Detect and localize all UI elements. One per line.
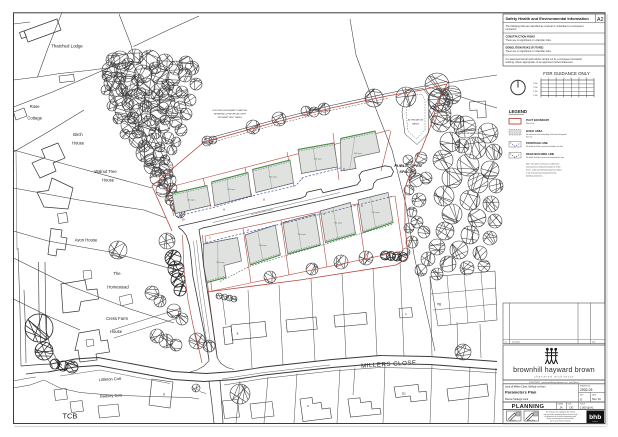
svg-text:SPACE: SPACE: [399, 169, 413, 174]
svg-text:150 sq.m: 150 sq.m: [227, 189, 236, 191]
svg-text:RETAINED & ENFORCED WITH: RETAINED & ENFORCED WITH: [214, 113, 246, 116]
svg-text:TCB: TCB: [63, 412, 78, 421]
svg-text:1:500: 1:500: [533, 83, 537, 85]
svg-text:Birch: Birch: [73, 132, 83, 137]
svg-text:description: description: [512, 341, 520, 344]
svg-text:INTERMITTENT TREES: INTERMITTENT TREES: [218, 117, 242, 119]
svg-text:Cottage: Cottage: [27, 116, 42, 121]
svg-text:2932-03: 2932-03: [580, 388, 593, 392]
svg-text:House: House: [72, 141, 85, 146]
svg-text:eg: eg: [437, 302, 441, 306]
svg-text:150 sq.m: 150 sq.m: [269, 176, 278, 178]
svg-text:LEGEND: LEGEND: [509, 109, 527, 114]
svg-text:10: 10: [555, 78, 557, 80]
svg-text:ATTENUATION: ATTENUATION: [408, 119, 424, 122]
svg-text:There are no significant or un: There are no significant or unfamiliar r…: [506, 39, 552, 42]
svg-text:future, under permitted develo: future, under permitted development righ…: [526, 169, 562, 172]
svg-text:Rose: Rose: [30, 104, 40, 109]
svg-text:CONSTRUCTION RISKS: CONSTRUCTION RISKS: [506, 35, 536, 39]
svg-text:No build shall be constructed: No build shall be constructed beyond thi…: [526, 156, 564, 159]
svg-text:this line: this line: [526, 136, 532, 139]
svg-text:1:100: 1:100: [533, 95, 537, 97]
svg-text:Homestead: Homestead: [107, 285, 129, 290]
svg-text:Avon House: Avon House: [75, 238, 98, 243]
svg-text:DEMOLITION RISKS (FUTURE): DEMOLITION RISKS (FUTURE): [506, 46, 544, 50]
svg-text:BUILD AREA: BUILD AREA: [526, 129, 543, 133]
svg-text:Note: This plan summarises sub: Note: This plan summarises submission: [526, 163, 559, 166]
svg-text:contractor:: contractor:: [506, 28, 518, 31]
svg-text:15: 15: [563, 78, 565, 80]
svg-text:BASIN: BASIN: [412, 123, 419, 126]
svg-text:No build shall be constructed: No build shall be constructed before thi…: [526, 145, 563, 148]
svg-text:170 sq.m: 170 sq.m: [334, 223, 343, 225]
svg-text:JA: JA: [560, 405, 563, 409]
svg-text:Nov '19: Nov '19: [592, 397, 601, 401]
svg-text:working, where appropriate, to: working, where appropriate, to an approv…: [506, 61, 574, 64]
svg-text:dwelling extensions.: dwelling extensions.: [526, 175, 543, 178]
svg-text:rev: rev: [505, 341, 508, 344]
svg-text:REAR BUILDING LINE: REAR BUILDING LINE: [526, 152, 554, 156]
svg-text:200 sq.m: 200 sq.m: [216, 262, 225, 264]
svg-text:DG: DG: [570, 405, 574, 409]
svg-text:1:200: 1:200: [533, 91, 537, 93]
svg-text:The: The: [113, 271, 121, 276]
svg-text:150 sq.m: 150 sq.m: [187, 200, 196, 202]
svg-text:10: 10: [182, 218, 185, 222]
svg-text:170 sq.m: 170 sq.m: [371, 212, 380, 214]
svg-text:1:500 @ A1: 1:500 @ A1: [580, 405, 594, 409]
svg-text:01543 254357 · www.brownhill: 01543 254357 · www.brownhillhaywardbrown…: [529, 381, 579, 384]
svg-text:PUBLIC OPEN: PUBLIC OPEN: [394, 163, 421, 168]
svg-text:EXISTING BOUNDARY: EXISTING BOUNDARY: [454, 129, 478, 132]
svg-text:The following risks are identi: The following risks are identified as un…: [506, 25, 584, 28]
svg-text:Parameters Plan: Parameters Plan: [505, 389, 537, 394]
svg-text:EXISTING BOUNDARY PLANTING: EXISTING BOUNDARY PLANTING: [213, 109, 248, 112]
svg-text:and represents indicative foot: and represents indicative footprints of …: [526, 166, 561, 169]
svg-text:House: House: [102, 177, 115, 182]
svg-text:Red Line: Red Line: [526, 123, 535, 125]
svg-text:Pascoe Strategic Land: Pascoe Strategic Land: [505, 398, 529, 401]
svg-text:1:250: 1:250: [533, 87, 537, 89]
svg-text:chartered architects: chartered architects: [534, 375, 574, 379]
svg-text:date: date: [592, 341, 595, 344]
svg-text:PLANTING RETAINED: PLANTING RETAINED: [455, 132, 478, 135]
svg-text:170 sq.m: 170 sq.m: [259, 245, 268, 247]
svg-text:A2: A2: [597, 17, 604, 23]
svg-text:20: 20: [570, 78, 572, 80]
svg-text:E1: E1: [402, 392, 406, 396]
svg-text:5: 5: [548, 78, 549, 80]
svg-text:150 sq.m: 150 sq.m: [354, 153, 363, 155]
svg-text:Cress Farm: Cress Farm: [106, 316, 128, 321]
svg-text:170 sq.m: 170 sq.m: [297, 234, 306, 236]
svg-text:House: House: [110, 329, 123, 334]
svg-text:bhb: bhb: [589, 414, 601, 421]
svg-text:FRONTAGE LINE: FRONTAGE LINE: [526, 141, 548, 145]
svg-text:150 sq.m: 150 sq.m: [314, 158, 323, 160]
svg-text:There are no significant or un: There are no significant or unfamiliar r…: [506, 50, 552, 53]
svg-text:Land off Millers Close, Welfor: Land off Millers Close, Welford-on-Avon: [505, 385, 546, 388]
svg-text:Safety Health and Environmenta: Safety Health and Environmental Informat…: [506, 16, 590, 21]
svg-text:Walnut Tree: Walnut Tree: [94, 169, 117, 174]
svg-text:or by separate planning permis: or by separate planning permissions,: [526, 172, 557, 175]
svg-text:30: 30: [586, 78, 588, 80]
svg-text:25: 25: [578, 78, 580, 80]
svg-text:PLANNING: PLANNING: [512, 404, 545, 410]
svg-text:Thatched Lodge: Thatched Lodge: [51, 44, 83, 49]
svg-text:PLOT BOUNDARY: PLOT BOUNDARY: [526, 118, 550, 122]
svg-text:FOR GUIDANCE ONLY: FOR GUIDANCE ONLY: [543, 71, 590, 76]
svg-text:brownhill hayward brown: brownhill hayward brown: [513, 367, 595, 374]
